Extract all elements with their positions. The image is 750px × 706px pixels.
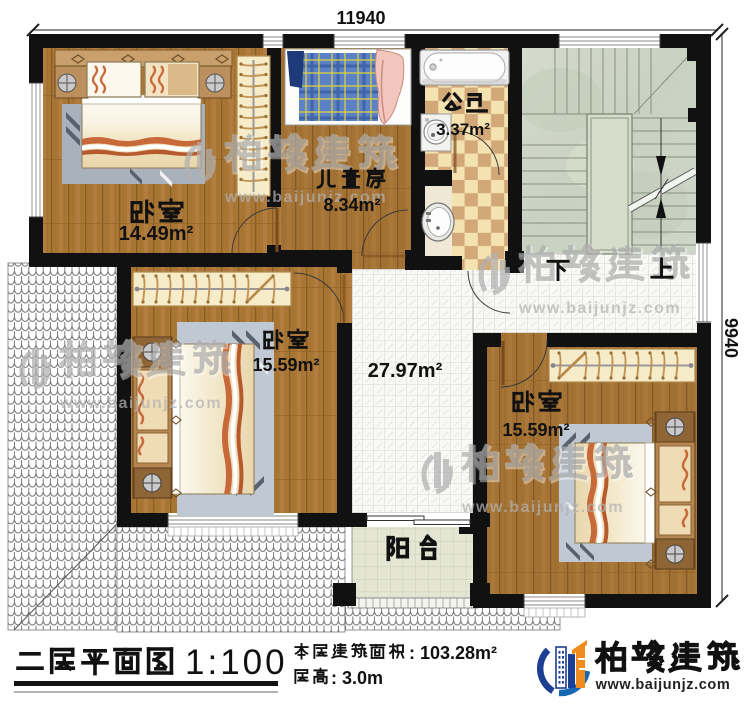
svg-text:: 3.0m: : 3.0m — [331, 668, 383, 688]
svg-text:14.49m²: 14.49m² — [119, 223, 194, 245]
svg-text:www.baijunjz.com: www.baijunjz.com — [595, 677, 731, 693]
svg-text:11940: 11940 — [336, 8, 385, 28]
svg-text:27.97m²: 27.97m² — [368, 360, 443, 382]
svg-text:15.59m²: 15.59m² — [252, 355, 319, 375]
svg-text:8.34m²: 8.34m² — [323, 195, 380, 215]
svg-text:15.59m²: 15.59m² — [502, 420, 569, 440]
svg-text:3.37m²: 3.37m² — [436, 120, 490, 139]
svg-text:1:100: 1:100 — [185, 643, 288, 682]
svg-text:: 103.28m²: : 103.28m² — [409, 643, 497, 663]
svg-text:9940: 9940 — [721, 318, 741, 358]
